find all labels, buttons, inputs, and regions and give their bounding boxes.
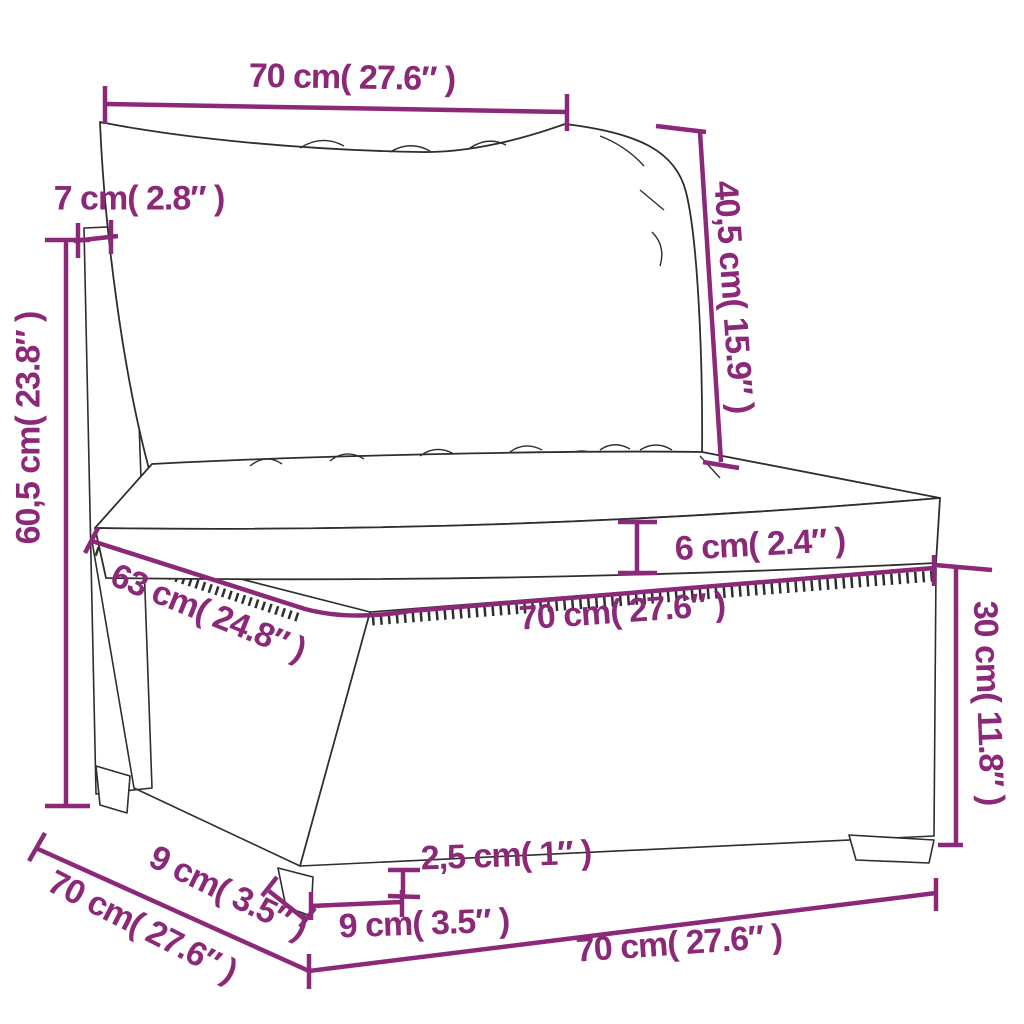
dim-label-foot-width: 9 cm( 3.5″ ) [338,902,510,947]
dim-label-leg-height: 2,5 cm( 1″ ) [420,834,592,879]
dim-label-top-width: 70 cm( 27.6″ ) [248,57,455,100]
back-cushion [100,122,702,495]
foot-back-left [96,766,130,813]
dimline-top-width [105,104,567,112]
dim-label-back-height: 60,5 cm( 23.8″ ) [10,312,49,545]
dim-label-base-height: 30 cm( 11.8″ ) [965,600,1011,806]
product-dimension-diagram: 70 cm( 27.6″ ) 40,5 cm( 15.9″ ) 7 cm( 2.… [0,0,1024,1024]
foot-front-right [849,835,934,863]
dim-label-back-thickness: 7 cm( 2.8″ ) [54,180,225,219]
